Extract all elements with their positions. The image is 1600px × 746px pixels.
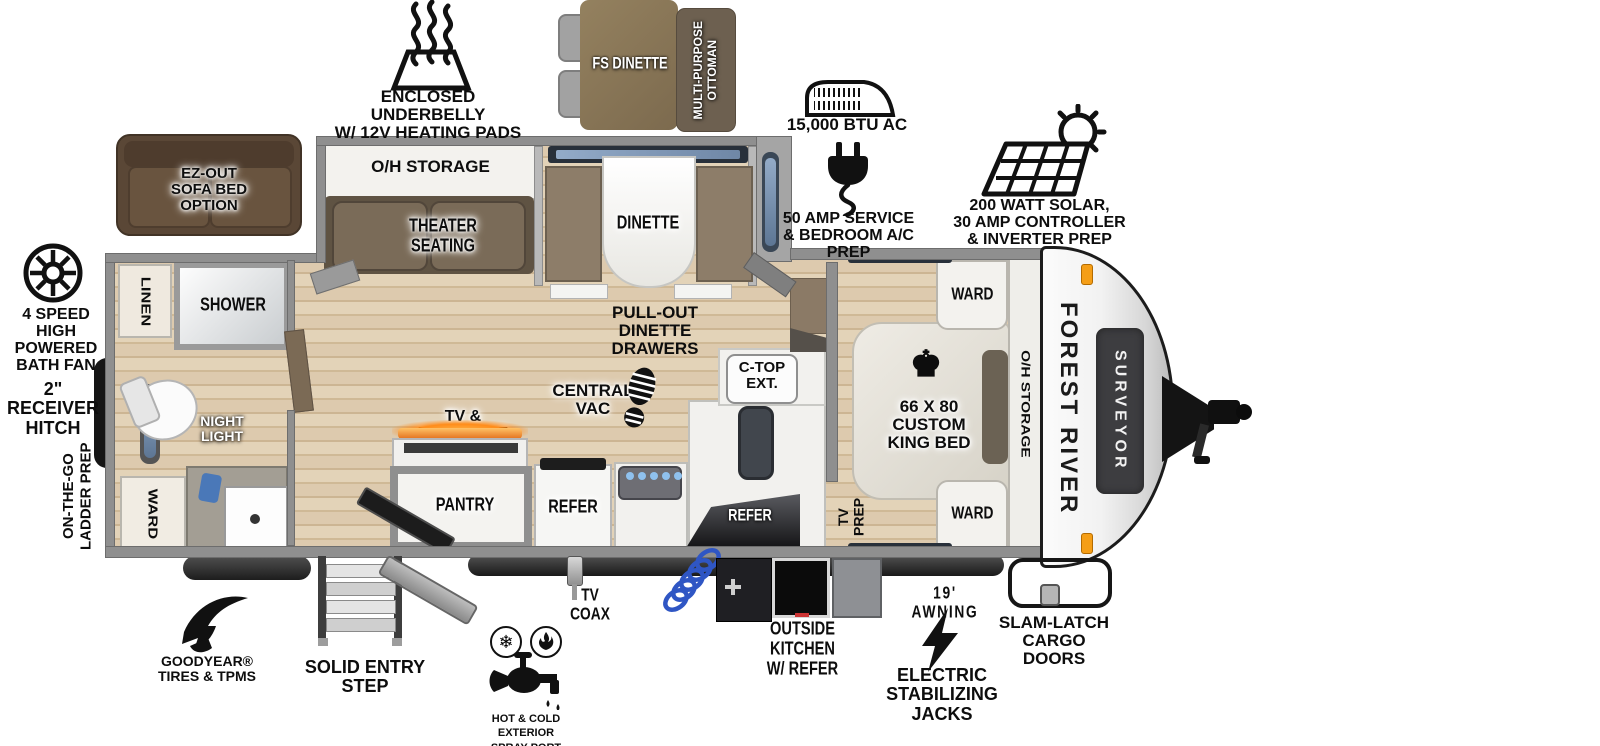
tv-screen xyxy=(404,443,518,453)
corner-cabinet xyxy=(790,278,828,334)
ward-top-label: WARD xyxy=(951,286,993,305)
ottoman: MULTI-PURPOSE OTTOMAN xyxy=(676,8,736,132)
wall-slide-left xyxy=(316,136,326,263)
lightning-bolt-icon xyxy=(918,608,962,672)
dinette-label: DINETTE xyxy=(607,213,690,233)
goodyear-label: GOODYEAR® TIRES & TPMS xyxy=(152,654,262,684)
refer-label: REFER xyxy=(543,497,603,517)
outside-kitchen-box xyxy=(716,558,772,622)
service-label: 50 AMP SERVICE & BEDROOM A/C PREP xyxy=(766,210,931,261)
wall-living-bedroom xyxy=(826,262,838,482)
wardrobe-bottom: WARD xyxy=(936,480,1008,548)
spray-port-icon xyxy=(484,652,572,710)
underbelly-label: ENCLOSED UNDERBELLY W/ 12V HEATING PADS xyxy=(330,88,526,143)
outside-kitchen-label: OUTSIDE KITCHEN W/ REFER xyxy=(740,619,865,679)
rv-floorplan-diagram: LINEN SHOWER NIGHT LIGHT WARD O/H STORAG… xyxy=(0,0,1600,746)
bed-pillow xyxy=(982,350,1008,464)
bedroom-oh-storage-label: O/H STORAGE xyxy=(1019,350,1032,458)
forest-river-wrap: FOREST RIVER xyxy=(1048,278,1088,540)
ladder-prep-label: ON-THE-GO LADDER PREP xyxy=(60,438,106,554)
crown-icon: ♚ xyxy=(906,346,946,382)
refrigerator-top xyxy=(540,458,606,470)
goodyear-wingfoot-icon xyxy=(170,588,250,654)
surveyor-badge: SURVEYOR xyxy=(1096,328,1144,494)
jack-foot xyxy=(1194,456,1210,464)
hose-coil xyxy=(660,546,724,614)
vanity-sink xyxy=(224,486,288,548)
dinette-slide-wall-left xyxy=(534,146,543,286)
dinette-bench-left xyxy=(545,166,602,282)
solar-icon xyxy=(980,104,1110,198)
cooktop xyxy=(618,466,682,500)
cargo-door-outline xyxy=(1008,558,1112,608)
surveyor-logo: SURVEYOR xyxy=(1111,350,1128,472)
flame-glyph xyxy=(537,632,555,652)
tv-prep-label: TV PREP xyxy=(836,486,868,548)
tv-coax-connector xyxy=(567,556,583,586)
fs-dinette-label: FS DINETTE xyxy=(590,55,669,73)
wall-bath-living-upper xyxy=(287,260,295,332)
marker-light-top xyxy=(1081,264,1093,285)
kitchen-sink xyxy=(738,406,774,480)
oh-storage-shelf: O/H STORAGE xyxy=(1008,258,1042,550)
heating-pads-icon xyxy=(378,0,482,92)
outside-kitchen-tv xyxy=(772,558,830,618)
faucet-dot xyxy=(250,514,260,524)
rear-bumper xyxy=(183,556,311,580)
hitch-ball xyxy=(1236,404,1252,420)
stab-jacks-label: ELECTRIC STABILIZING JACKS xyxy=(872,666,1012,724)
hitch-aframe xyxy=(1162,376,1214,462)
pantry-label: PANTRY xyxy=(426,495,503,515)
dinette-drawer-left xyxy=(550,284,608,299)
tv-coax-label: TV COAX xyxy=(564,586,616,624)
forest-river-logo: FOREST RIVER xyxy=(1055,302,1081,515)
outside-kitchen-griddle xyxy=(832,558,882,618)
ez-sofa-label: EZ-OUT SOFA BED OPTION xyxy=(152,166,266,214)
cargo-doors-label: SLAM-LATCH CARGO DOORS xyxy=(995,614,1113,669)
solar-label: 200 WATT SOLAR, 30 AMP CONTROLLER & INVE… xyxy=(952,197,1127,248)
linen-label: LINEN xyxy=(129,265,162,338)
shower-label: SHOWER xyxy=(194,295,271,315)
wall-bath-living-lower xyxy=(287,410,295,546)
oh-storage-label: O/H STORAGE xyxy=(368,158,493,176)
cargo-door-latch xyxy=(1040,584,1060,606)
king-bed-label: 66 X 80 CUSTOM KING BED xyxy=(884,398,974,453)
entry-step-label: SOLID ENTRY STEP xyxy=(300,658,430,697)
spray-port-label: HOT & COLD EXTERIOR SPRAY PORT xyxy=(466,712,586,746)
dinette-drawer-right xyxy=(674,284,732,299)
ctop-ext-label: C-TOP EXT. xyxy=(726,360,798,392)
pullout-drawers-label: PULL-OUT DINETTE DRAWERS xyxy=(580,304,730,359)
tv-cabinet xyxy=(392,438,528,468)
marker-light-bottom xyxy=(1081,533,1093,554)
bath-fan-label: 4 SPEED HIGH POWERED BATH FAN xyxy=(0,306,112,374)
night-light-label: NIGHT LIGHT xyxy=(188,414,256,444)
plug-icon xyxy=(824,142,872,216)
theater-label: THEATER SEATING xyxy=(396,216,491,256)
receiver-hitch-label: 2" RECEIVER HITCH xyxy=(0,380,106,438)
bath-fan-icon xyxy=(22,242,84,304)
bath-ward-label: WARD xyxy=(137,479,168,549)
wall-rear xyxy=(105,253,115,558)
ac-unit-icon xyxy=(802,76,898,120)
ottoman-label: MULTI-PURPOSE OTTOMAN xyxy=(692,21,720,119)
ward-bottom-label: WARD xyxy=(951,505,993,524)
ac-label: 15,000 BTU AC xyxy=(782,116,912,134)
outside-refer-label: REFER xyxy=(717,507,782,525)
wardrobe-top: WARD xyxy=(936,260,1008,330)
